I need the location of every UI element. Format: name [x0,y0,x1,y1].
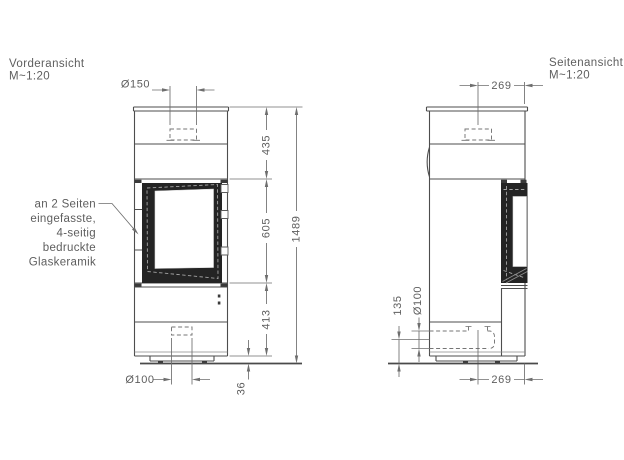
dim-side-air-inlet-diameter: Ø100 [412,286,424,315]
front-view-scale: M~1:20 [9,71,50,83]
front-view-title: Vorderansicht [9,58,85,70]
front-view [134,107,303,364]
front-glass-window [155,189,214,269]
dim-flue-diameter: Ø150 [121,79,150,91]
annotation-line-4: bedruckte [43,242,96,254]
annotation-line-5: Glaskeramik [29,257,96,269]
front-air-inlet-stub [172,327,193,335]
dim-base-gap: 36 [236,382,248,395]
annotation-line-3: 4-seitig [57,228,96,240]
dim-inlet-to-front: 269 [491,374,511,386]
dim-upper-height: 435 [261,135,273,155]
glass-ceramic-annotation: an 2 Seiten eingefasste, 4-seitig bedruc… [29,199,139,269]
dim-glass-height: 605 [261,218,273,238]
annotation-line-2: eingefasste, [30,213,96,225]
side-flue-collar [465,129,492,140]
side-view [388,107,538,385]
side-air-duct [430,327,495,349]
side-view-scale: M~1:20 [549,70,590,82]
dim-air-inlet-center-height: 135 [392,295,404,315]
side-view-title: Seitenansicht [549,57,624,69]
front-view-title-block: Vorderansicht M~1:20 [9,58,85,83]
dim-flue-to-front: 269 [491,80,511,92]
side-view-title-block: Seitenansicht M~1:20 [549,57,624,82]
dim-total-height: 1489 [291,216,303,243]
front-flue-collar [170,129,197,140]
side-glass-window [513,197,527,267]
technical-drawing-stove: Vorderansicht M~1:20 Seitenansicht M~1:2… [0,0,624,460]
dim-air-inlet-diameter: Ø100 [125,374,154,386]
dim-lower-height: 413 [261,309,273,329]
annotation-line-1: an 2 Seiten [35,199,97,211]
annotation-leader-line [99,204,134,229]
